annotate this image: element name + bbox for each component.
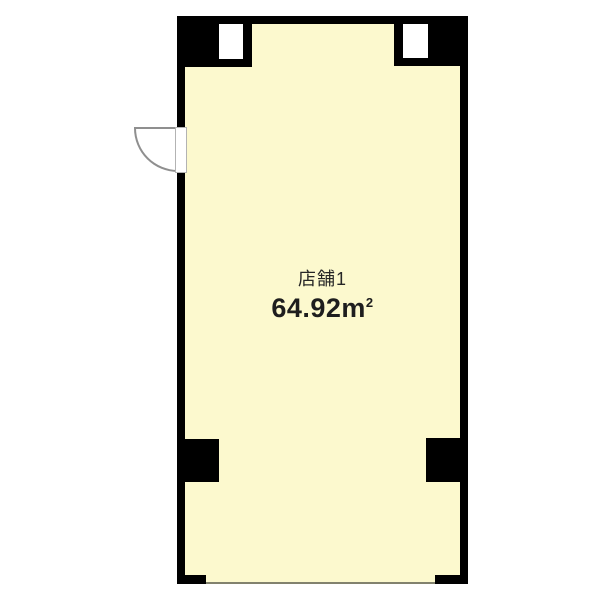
right-pillar [426, 438, 468, 482]
storefront-opening-line [177, 582, 468, 584]
bottom-right-wall-corner [435, 575, 468, 584]
room-area-value: 64.92 [271, 293, 341, 323]
bottom-left-wall-corner [177, 575, 206, 584]
room-label: 店舗1 64.92m2 [177, 268, 468, 323]
room-name: 店舗1 [177, 268, 468, 290]
top-right-window [403, 24, 428, 58]
left-pillar [177, 439, 219, 482]
door-leaf-line [134, 127, 179, 129]
door-swing-arc-icon [134, 128, 178, 172]
entry-door-opening [175, 127, 187, 173]
room-area-unit: m [341, 293, 366, 323]
top-left-window [219, 24, 243, 59]
room-area-unit-sup: 2 [366, 295, 374, 310]
floorplan-canvas: 店舗1 64.92m2 [0, 0, 600, 600]
room-area: 64.92m2 [177, 293, 468, 323]
